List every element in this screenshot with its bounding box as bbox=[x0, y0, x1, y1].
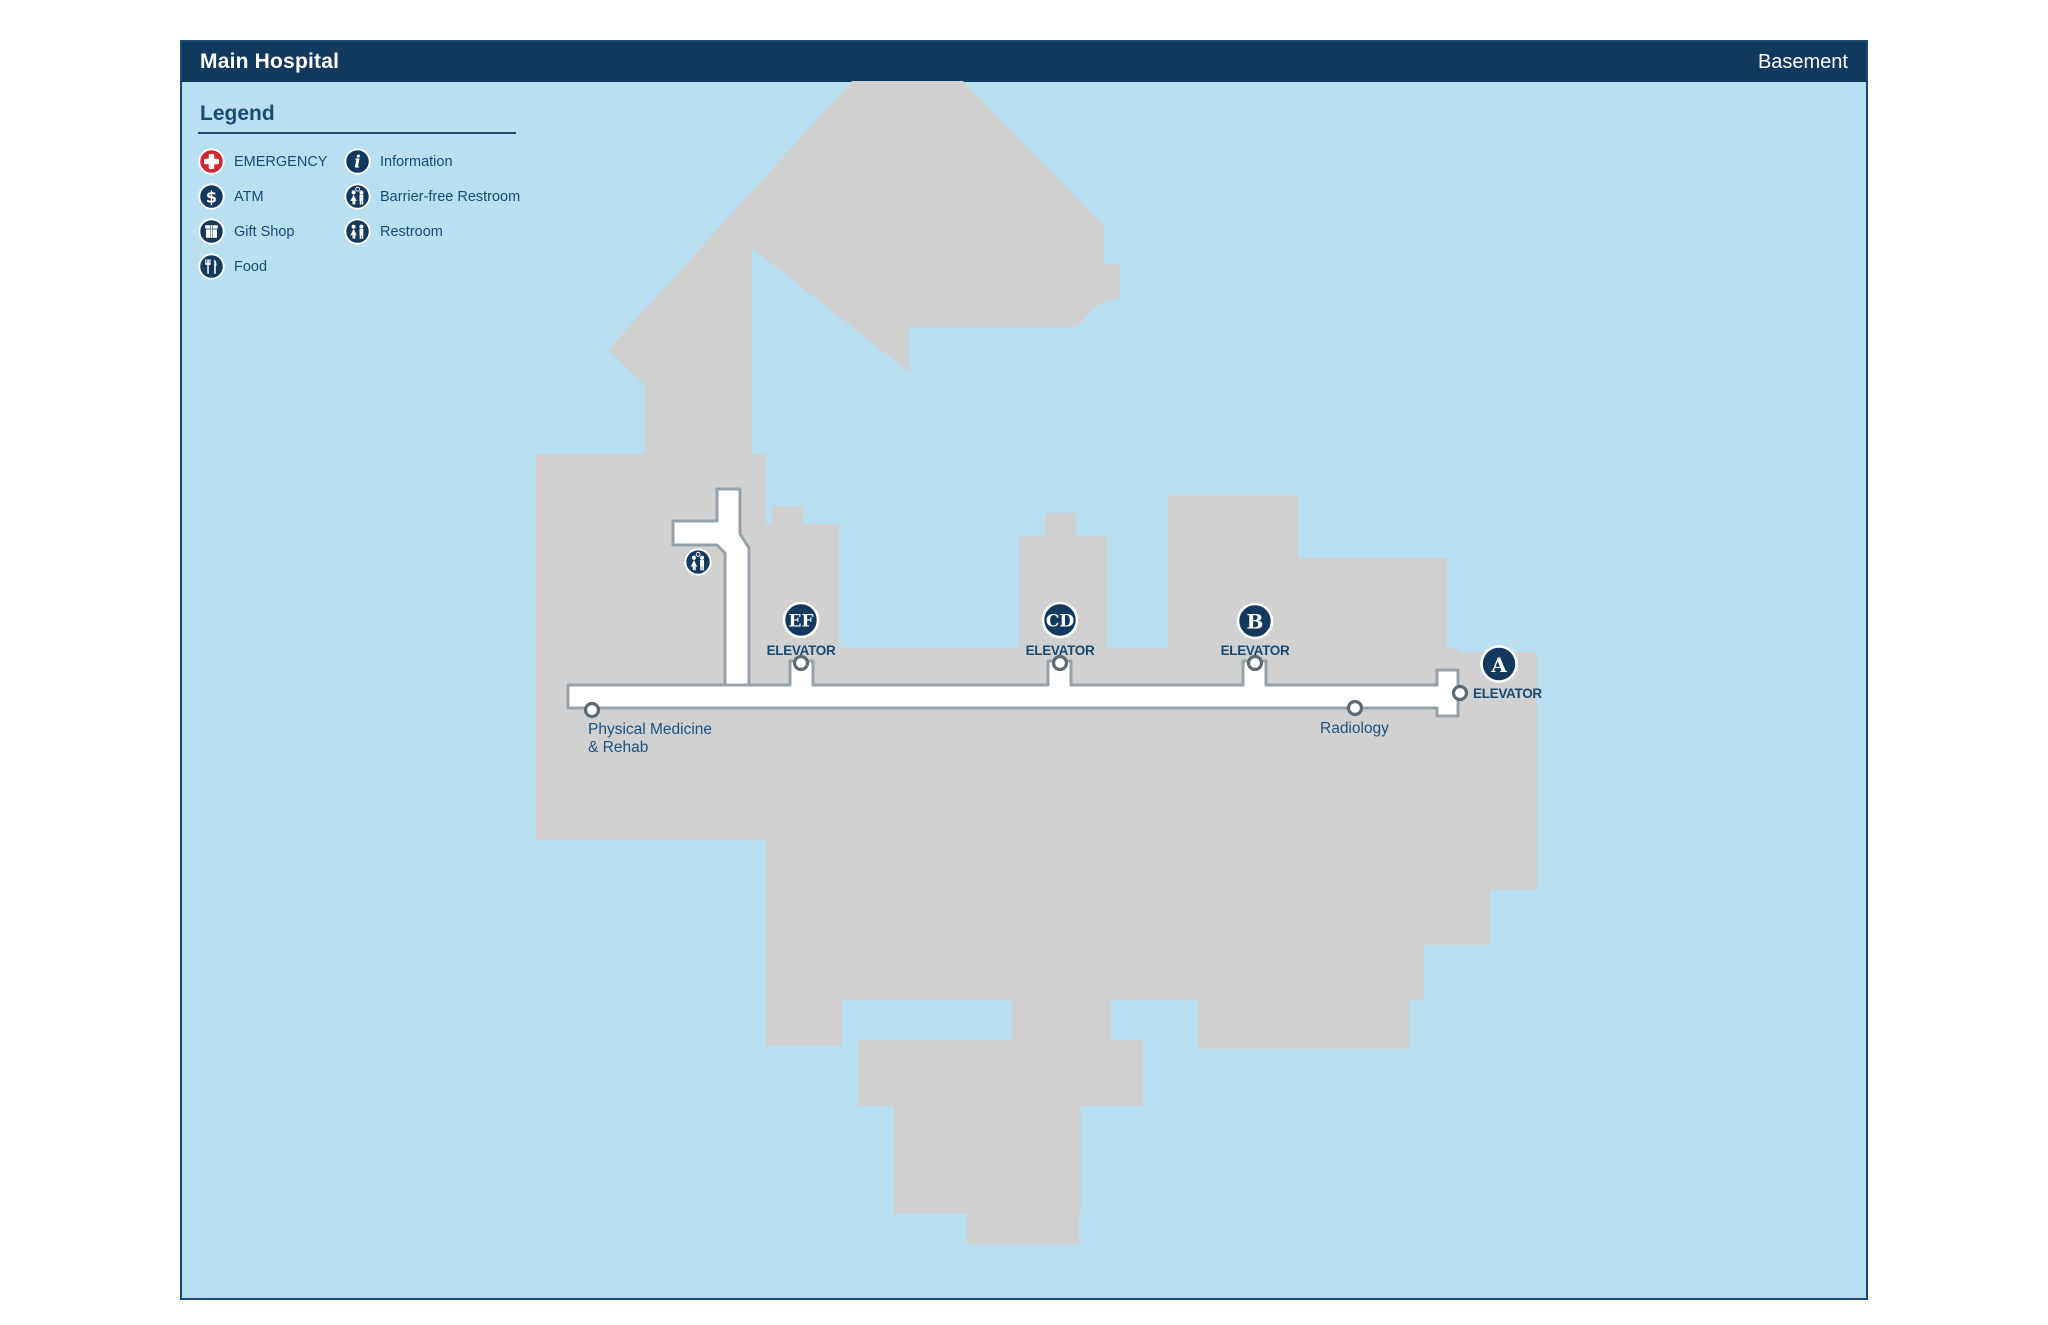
fork-knife-icon bbox=[198, 253, 225, 280]
building-footprint bbox=[536, 81, 1537, 1245]
elevator-id: CD bbox=[1046, 612, 1075, 632]
courtyard-notch bbox=[842, 1003, 1012, 1040]
info-icon bbox=[344, 148, 371, 175]
legend-item-emergency: EMERGENCY bbox=[198, 144, 340, 179]
elevator-id: B bbox=[1247, 610, 1264, 634]
hospital-title: Main Hospital bbox=[200, 50, 339, 74]
legend-item-information: Information bbox=[344, 144, 520, 179]
emergency-cross-icon bbox=[198, 148, 225, 175]
building-north-wing bbox=[608, 81, 1120, 454]
room-label-physical-medicine-line1: Physical Medicine bbox=[588, 721, 712, 738]
legend-item-gift-shop: Gift Shop bbox=[198, 214, 340, 249]
floor-label: Basement bbox=[1758, 51, 1848, 74]
building-south-block bbox=[766, 686, 1537, 890]
elevator-label: ELEVATOR bbox=[767, 643, 836, 658]
elevator-label: ELEVATOR bbox=[1473, 686, 1542, 701]
legend-item-label: Information bbox=[380, 154, 453, 170]
door-elevator-ef bbox=[795, 657, 808, 670]
door-physical-medicine bbox=[586, 704, 599, 717]
legend-divider bbox=[198, 132, 516, 134]
elevator-id: A bbox=[1490, 653, 1507, 677]
map-barrier-free-restroom-icon bbox=[685, 549, 710, 574]
elevator-label: ELEVATOR bbox=[1221, 643, 1290, 658]
room-label-physical-medicine-line2: & Rehab bbox=[588, 739, 648, 756]
door-elevator-cd bbox=[1054, 657, 1067, 670]
legend-item-food: Food bbox=[198, 249, 340, 284]
legend-item-label: Food bbox=[234, 259, 267, 275]
legend-title: Legend bbox=[200, 102, 534, 126]
screen: Main Hospital Basement bbox=[0, 0, 2048, 1325]
gift-icon bbox=[198, 218, 225, 245]
legend-item-label: Barrier-free Restroom bbox=[380, 189, 520, 205]
door-radiology bbox=[1349, 702, 1362, 715]
map-header-bar: Main Hospital Basement bbox=[182, 42, 1866, 82]
barrier-free-restroom-icon bbox=[344, 183, 371, 210]
legend-item-barrier-free-restroom: Barrier-free Restroom bbox=[344, 179, 520, 214]
legend-item-label: Restroom bbox=[380, 224, 443, 240]
legend-item-label: Gift Shop bbox=[234, 224, 294, 240]
floor-map-panel: Main Hospital Basement bbox=[180, 40, 1868, 1300]
legend-item-atm: ATM bbox=[198, 179, 340, 214]
elevator-label: ELEVATOR bbox=[1026, 643, 1095, 658]
door-elevator-a bbox=[1454, 687, 1467, 700]
room-label-radiology: Radiology bbox=[1320, 720, 1389, 737]
legend-item-label: ATM bbox=[234, 189, 264, 205]
elevator-id: EF bbox=[788, 612, 813, 632]
legend: Legend EMERGENCY ATM Gift Shop bbox=[198, 102, 534, 284]
legend-item-label: EMERGENCY bbox=[234, 154, 327, 170]
door-elevator-b bbox=[1249, 657, 1262, 670]
restroom-icon bbox=[344, 218, 371, 245]
legend-item-restroom: Restroom bbox=[344, 214, 520, 249]
dollar-icon bbox=[198, 183, 225, 210]
